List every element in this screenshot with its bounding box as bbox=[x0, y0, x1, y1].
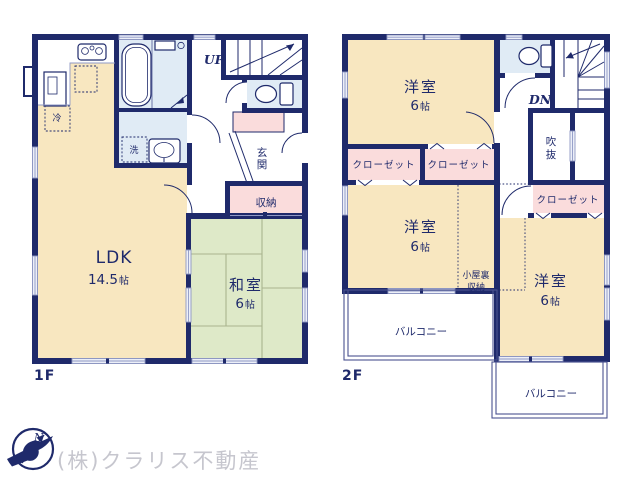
company-name: (株)クラリス不動産 bbox=[57, 449, 261, 473]
svg-text:抜: 抜 bbox=[546, 148, 557, 161]
label-genkan: 玄 bbox=[257, 146, 268, 159]
label-ldk: LDK bbox=[96, 248, 133, 268]
floor-plan-page: LDK 14.5 帖 和室 6 帖 玄 関 収納 冷 洗 UP 1F bbox=[0, 0, 640, 480]
toilet-tank bbox=[280, 83, 293, 105]
label-yoshitsu-3: 洋室 bbox=[534, 272, 568, 290]
label-yoshitsu-2: 洋室 bbox=[404, 218, 438, 236]
label-north: N bbox=[33, 431, 44, 444]
floor-1f: LDK 14.5 帖 和室 6 帖 玄 関 収納 冷 洗 UP 1F bbox=[24, 34, 308, 384]
stairs-2f bbox=[564, 40, 604, 108]
label-storage: 収納 bbox=[256, 196, 277, 209]
label-void: 吹 bbox=[546, 135, 557, 148]
svg-text:関: 関 bbox=[257, 159, 268, 171]
svg-text:収納: 収納 bbox=[467, 281, 485, 293]
stairs-1f bbox=[230, 40, 302, 75]
compass: N bbox=[7, 429, 53, 469]
svg-text:6: 6 bbox=[540, 293, 549, 309]
label-fridge: 冷 bbox=[52, 112, 61, 124]
wall-niche bbox=[24, 67, 33, 96]
label-closet-3: クローゼット bbox=[536, 194, 599, 206]
entrance-door-arc bbox=[282, 133, 302, 153]
label-ldk-unit: 帖 bbox=[119, 274, 129, 287]
label-closet-left: クローゼット bbox=[352, 159, 415, 171]
label-balcony-2: バルコニー bbox=[525, 388, 577, 400]
svg-text:6: 6 bbox=[410, 98, 419, 114]
svg-text:帖: 帖 bbox=[420, 100, 430, 113]
toilet-bowl bbox=[256, 86, 277, 103]
label-laundry: 洗 bbox=[129, 144, 138, 156]
label-1f: 1F bbox=[34, 368, 55, 384]
svg-text:帖: 帖 bbox=[550, 295, 560, 308]
label-balcony-1: バルコニー bbox=[395, 326, 447, 338]
toilet-tank-2f bbox=[541, 45, 552, 67]
label-yoshitsu-1: 洋室 bbox=[404, 78, 438, 96]
label-washitsu-size: 6 bbox=[235, 296, 244, 312]
label-washitsu-unit: 帖 bbox=[245, 298, 255, 311]
label-closet-right: クローゼット bbox=[427, 159, 490, 171]
stove bbox=[78, 44, 106, 60]
floor-2f: 洋室 6 帖 洋室 6 帖 洋室 6 帖 クローゼット クローゼット クローゼッ… bbox=[342, 34, 610, 418]
label-up: UP bbox=[204, 52, 225, 67]
balcony-1 bbox=[344, 290, 497, 360]
label-2f: 2F bbox=[342, 368, 363, 384]
svg-text:6: 6 bbox=[410, 239, 419, 255]
label-attic: 小屋裏 bbox=[462, 269, 489, 281]
bath-counter bbox=[155, 41, 175, 50]
label-dn: DN bbox=[528, 92, 552, 107]
label-washitsu: 和室 bbox=[229, 276, 263, 294]
svg-text:帖: 帖 bbox=[420, 241, 430, 254]
toilet-bowl-2f bbox=[519, 48, 539, 65]
label-ldk-size: 14.5 bbox=[88, 272, 118, 288]
shoe-cabinet bbox=[233, 112, 284, 132]
floor-plan-drawing: LDK 14.5 帖 和室 6 帖 玄 関 収納 冷 洗 UP 1F bbox=[0, 0, 640, 480]
